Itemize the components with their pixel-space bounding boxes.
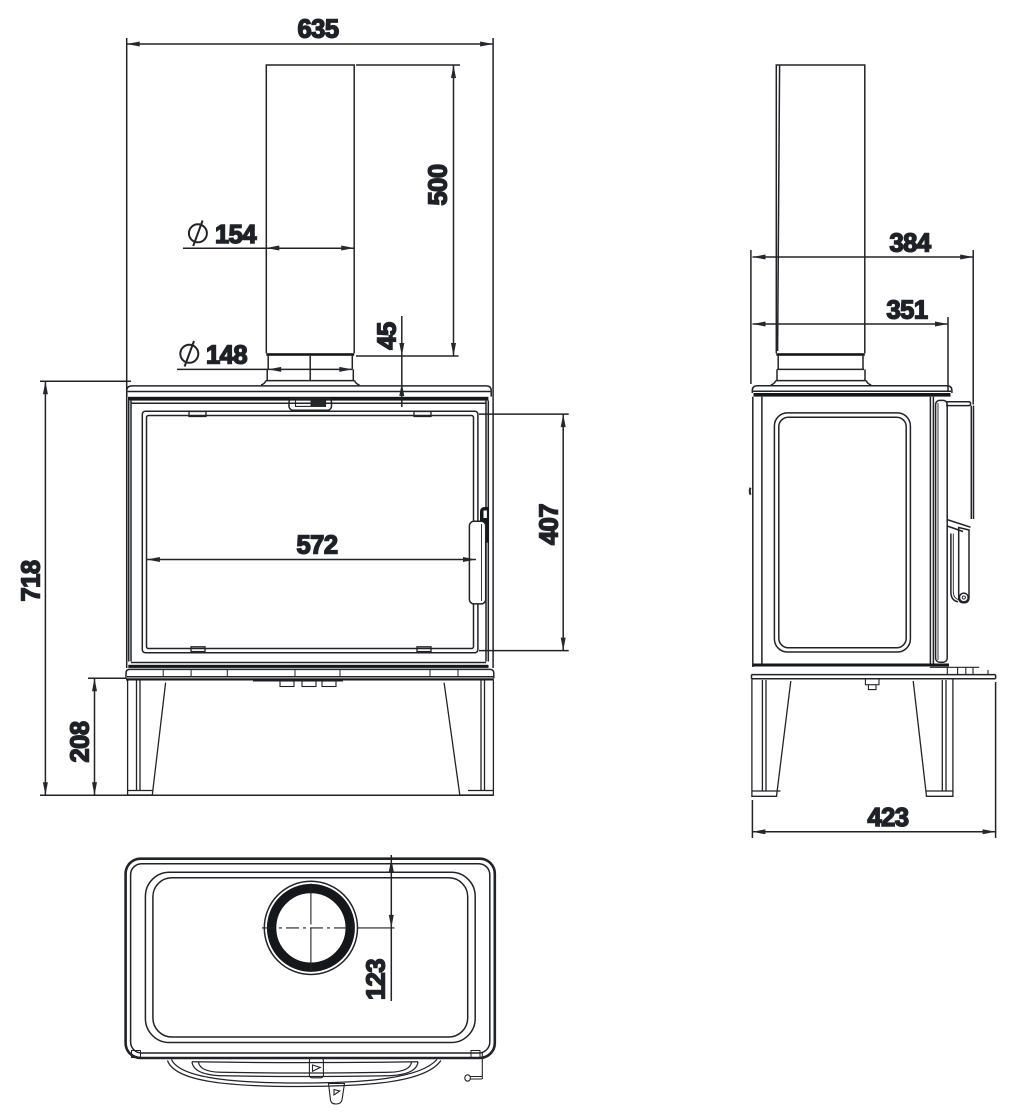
svg-text:718: 718 [18,560,46,601]
svg-text:154: 154 [215,221,257,249]
svg-text:351: 351 [886,297,927,325]
svg-text:208: 208 [67,721,95,762]
svg-text:148: 148 [206,342,247,370]
svg-text:45: 45 [374,322,402,350]
svg-text:384: 384 [889,230,931,258]
svg-text:407: 407 [536,504,564,545]
svg-text:635: 635 [297,16,338,44]
svg-text:123: 123 [363,959,391,1000]
svg-text:423: 423 [867,804,908,832]
svg-text:500: 500 [425,164,453,205]
svg-text:572: 572 [296,532,337,560]
